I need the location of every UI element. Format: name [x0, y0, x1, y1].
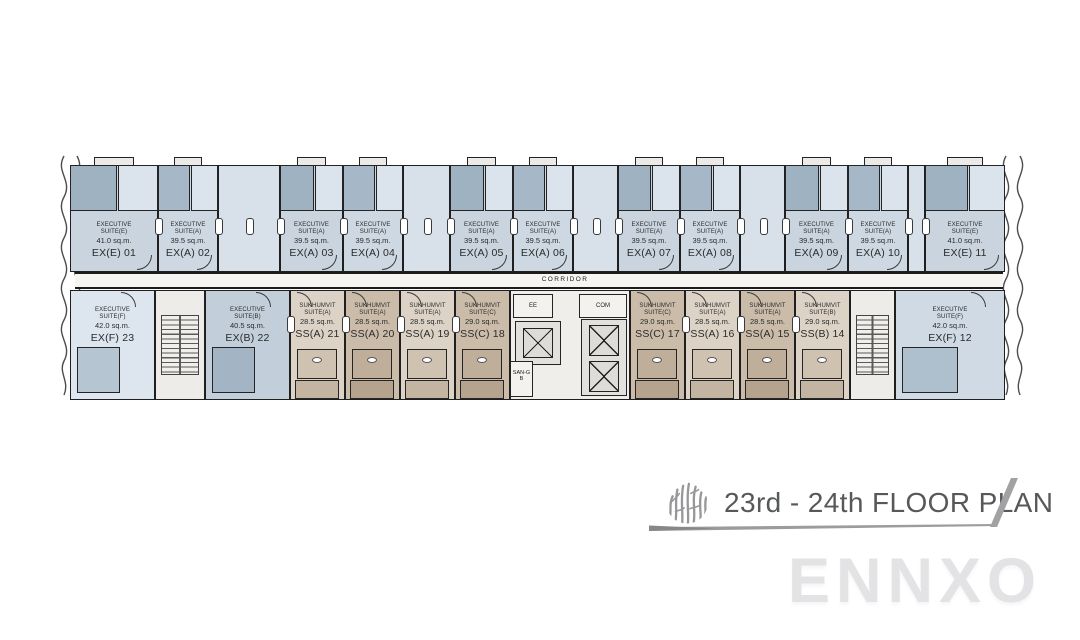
- bath-block: [118, 165, 158, 211]
- unit-label-area: 39.5 sq.m.: [619, 237, 679, 246]
- corridor: CORRIDOR: [75, 272, 1003, 289]
- unit-label-code: EX(B) 22: [206, 332, 289, 344]
- door-slot: [593, 218, 601, 235]
- unit-label-t1: EXECUTIVE: [281, 222, 342, 229]
- unit-label: EXECUTIVESUITE(A)39.5 sq.m.EX(A) 07: [619, 222, 679, 259]
- unit-label-t2: SUITE(A): [514, 229, 572, 236]
- balcony: [405, 380, 449, 399]
- unit-label-area: 39.5 sq.m.: [344, 237, 402, 246]
- unit-label: EXECUTIVESUITE(A)39.5 sq.m.EX(A) 09: [786, 222, 847, 259]
- unit-label-t2: SUITE(C): [456, 310, 509, 317]
- roof-ledge: [297, 157, 326, 166]
- bath-block: [315, 165, 343, 211]
- toilet-icon: [477, 357, 487, 363]
- door-arc: [692, 292, 707, 307]
- roof-ledge: [947, 157, 984, 166]
- elevator-shaft-right: [581, 319, 627, 396]
- unit-ssa-21: SUKHUMVITSUITE(A)28.5 sq.m.SS(A) 21: [290, 290, 345, 400]
- unit-exa-02: EXECUTIVESUITE(A)39.5 sq.m.EX(A) 02: [158, 165, 218, 272]
- door-slot: [400, 218, 408, 235]
- bath-block: [77, 347, 120, 393]
- door-arc: [492, 255, 507, 270]
- bath-block: [652, 165, 680, 211]
- door-arc: [747, 292, 762, 307]
- door-arc: [637, 292, 652, 307]
- unit-label: EXECUTIVESUITE(A)39.5 sq.m.EX(A) 02: [159, 222, 217, 259]
- unit-label-t1: EXECUTIVE: [896, 307, 1004, 314]
- bedroom-block: [680, 165, 712, 211]
- unit-exa-08: EXECUTIVESUITE(A)39.5 sq.m.EX(A) 08: [680, 165, 740, 272]
- unit-label-t2: SUITE(E): [71, 229, 157, 236]
- unit-label-code: SS(A) 19: [401, 328, 454, 340]
- door-arc: [121, 292, 136, 307]
- unit-label-area: 39.5 sq.m.: [514, 237, 572, 246]
- roof-ledge: [864, 157, 892, 166]
- unit-label-t1: EXECUTIVE: [159, 222, 217, 229]
- door-slot: [682, 316, 690, 333]
- unit-label-code: SS(B) 14: [796, 328, 849, 340]
- stairwell: [155, 290, 205, 400]
- unit-label-area: 39.5 sq.m.: [451, 237, 512, 246]
- balcony: [460, 380, 504, 399]
- bath-block: [747, 349, 786, 379]
- unit-label-code: SS(A) 15: [741, 328, 794, 340]
- bath-block: [713, 165, 740, 211]
- unit-label: EXECUTIVESUITE(A)39.5 sq.m.EX(A) 04: [344, 222, 402, 259]
- bath-block: [212, 347, 255, 393]
- door-slot: [737, 316, 745, 333]
- door-slot: [570, 218, 578, 235]
- unit-ssa-20: SUKHUMVITSUITE(A)28.5 sq.m.SS(A) 20: [345, 290, 400, 400]
- unit-label: EXECUTIVESUITE(F)42.0 sq.m.EX(F) 12: [896, 307, 1004, 344]
- unit-label: EXECUTIVESUITE(A)39.5 sq.m.EX(A) 05: [451, 222, 512, 259]
- door-slot: [782, 218, 790, 235]
- door-arc: [802, 292, 817, 307]
- unit-label-t2: SUITE(A): [451, 229, 512, 236]
- unit-label: SUKHUMVITSUITE(C)29.0 sq.m.SS(C) 17: [631, 303, 684, 340]
- toilet-icon: [312, 357, 322, 363]
- unit-label-t1: EXECUTIVE: [344, 222, 402, 229]
- elevator-icon: [589, 325, 619, 356]
- unit-label-area: 39.5 sq.m.: [681, 237, 739, 246]
- door-slot: [447, 218, 455, 235]
- toilet-icon: [422, 357, 432, 363]
- unit-exa-10: EXECUTIVESUITE(A)39.5 sq.m.EX(A) 10: [848, 165, 908, 272]
- bath-block: [191, 165, 218, 211]
- unit-label-code: SS(A) 16: [686, 328, 739, 340]
- unit-label-code: SS(A) 20: [346, 328, 399, 340]
- bath-block: [352, 349, 391, 379]
- door-slot: [287, 316, 295, 333]
- bath-block: [297, 349, 336, 379]
- unit-ssa-15: SUKHUMVITSUITE(A)28.5 sq.m.SS(A) 15: [740, 290, 795, 400]
- unit-exf-23: EXECUTIVESUITE(F)42.0 sq.m.EX(F) 23: [70, 290, 155, 400]
- toilet-icon: [707, 357, 717, 363]
- bedroom-block: [450, 165, 484, 211]
- toilet-icon: [817, 357, 827, 363]
- room-com: COM: [579, 294, 627, 318]
- unit-label-t1: EXECUTIVE: [514, 222, 572, 229]
- door-slot: [905, 218, 913, 235]
- unit-label-area: 29.0 sq.m.: [456, 318, 509, 327]
- unit-label-t2: SUITE(A): [741, 310, 794, 317]
- door-slot: [677, 218, 685, 235]
- unit-label: SUKHUMVITSUITE(A)28.5 sq.m.SS(A) 20: [346, 303, 399, 340]
- roof-ledge: [696, 157, 724, 166]
- door-arc: [197, 255, 212, 270]
- unit-label-area: 28.5 sq.m.: [741, 318, 794, 327]
- bath-block: [902, 347, 958, 393]
- bath-block: [969, 165, 1005, 211]
- bedroom-block: [925, 165, 968, 211]
- unit-label-t2: SUITE(B): [796, 310, 849, 317]
- room-san-gb-label: SAN-GB: [512, 370, 531, 382]
- unit-label-t1: EXECUTIVE: [619, 222, 679, 229]
- unit-label-t2: SUITE(A): [619, 229, 679, 236]
- unit-exa-05: EXECUTIVESUITE(A)39.5 sq.m.EX(A) 05: [450, 165, 513, 272]
- bedroom-block: [343, 165, 375, 211]
- unit-exa-06: EXECUTIVESUITE(A)39.5 sq.m.EX(A) 06: [513, 165, 573, 272]
- unit-exf-12: EXECUTIVESUITE(F)42.0 sq.m.EX(F) 12: [895, 290, 1005, 400]
- unit-label-t2: SUITE(E): [926, 229, 1004, 236]
- unit-label-area: 39.5 sq.m.: [281, 237, 342, 246]
- unit-label: EXECUTIVESUITE(E)41.0 sq.m.EX(E) 11: [926, 222, 1004, 259]
- unit-label-t2: SUITE(F): [896, 314, 1004, 321]
- unit-label-area: 40.5 sq.m.: [206, 322, 289, 331]
- door-slot: [792, 316, 800, 333]
- door-slot: [246, 218, 254, 235]
- door-arc: [462, 292, 477, 307]
- unit-exe-11: EXECUTIVESUITE(E)41.0 sq.m.EX(E) 11: [925, 165, 1005, 272]
- unit-ssb-14: SUKHUMVITSUITE(B)29.0 sq.m.SS(B) 14: [795, 290, 850, 400]
- door-slot: [845, 218, 853, 235]
- door-slot: [922, 218, 930, 235]
- balcony: [745, 380, 789, 399]
- bedroom-block: [848, 165, 880, 211]
- unit-label-t1: EXECUTIVE: [71, 222, 157, 229]
- unit-label-area: 28.5 sq.m.: [686, 318, 739, 327]
- unit-label-t1: EXECUTIVE: [681, 222, 739, 229]
- unit-label-code: EX(F) 23: [71, 332, 154, 344]
- unit-ssc-17: SUKHUMVITSUITE(C)29.0 sq.m.SS(C) 17: [630, 290, 685, 400]
- unit-label-t2: SUITE(A): [344, 229, 402, 236]
- door-arc: [297, 292, 312, 307]
- roof-ledge: [359, 157, 387, 166]
- elevator-core: EECOMSAN-GB: [510, 290, 630, 400]
- unit-ssa-16: SUKHUMVITSUITE(A)28.5 sq.m.SS(A) 16: [685, 290, 740, 400]
- bedroom-block: [70, 165, 117, 211]
- unit-label-area: 42.0 sq.m.: [71, 322, 154, 331]
- floor-plan: CORRIDOR EXECUTIVESUITE(E)41.0 sq.m.EX(E…: [0, 0, 1080, 640]
- shaft: [403, 165, 450, 272]
- door-arc: [352, 292, 367, 307]
- door-arc: [971, 292, 986, 307]
- balcony: [635, 380, 679, 399]
- balcony: [800, 380, 844, 399]
- door-arc: [659, 255, 674, 270]
- door-slot: [424, 218, 432, 235]
- unit-label-t1: EXECUTIVE: [71, 307, 154, 314]
- unit-label: EXECUTIVESUITE(A)39.5 sq.m.EX(A) 03: [281, 222, 342, 259]
- unit-label-code: SS(C) 17: [631, 328, 684, 340]
- door-arc: [322, 255, 337, 270]
- unit-ssc-18: SUKHUMVITSUITE(C)29.0 sq.m.SS(C) 18: [455, 290, 510, 400]
- unit-label: EXECUTIVESUITE(B)40.5 sq.m.EX(B) 22: [206, 307, 289, 344]
- room-ee-label: EE: [514, 303, 552, 310]
- bath-block: [692, 349, 731, 379]
- unit-label-area: 39.5 sq.m.: [849, 237, 907, 246]
- door-arc: [407, 292, 422, 307]
- stair-flight: [856, 315, 889, 375]
- door-slot: [760, 218, 768, 235]
- door-slot: [215, 218, 223, 235]
- swoosh-underline: [645, 470, 1040, 542]
- door-slot: [342, 316, 350, 333]
- unit-label-area: 42.0 sq.m.: [896, 322, 1004, 331]
- door-arc: [256, 292, 271, 307]
- door-slot: [277, 218, 285, 235]
- unit-label-area: 41.0 sq.m.: [71, 237, 157, 246]
- door-arc: [887, 255, 902, 270]
- unit-label-area: 28.5 sq.m.: [346, 318, 399, 327]
- door-arc: [382, 255, 397, 270]
- elevator-icon: [523, 328, 553, 358]
- door-arc: [552, 255, 567, 270]
- unit-label-t2: SUITE(A): [686, 310, 739, 317]
- unit-label-t2: SUITE(C): [631, 310, 684, 317]
- bedroom-block: [618, 165, 651, 211]
- door-arc: [137, 255, 152, 270]
- bath-block: [485, 165, 513, 211]
- unit-label-t2: SUITE(F): [71, 314, 154, 321]
- bath-block: [820, 165, 848, 211]
- balcony: [690, 380, 734, 399]
- bath-block: [462, 349, 501, 379]
- room-com-label: COM: [580, 303, 626, 310]
- unit-exe-01: EXECUTIVESUITE(E)41.0 sq.m.EX(E) 01: [70, 165, 158, 272]
- unit-label: SUKHUMVITSUITE(A)28.5 sq.m.SS(A) 15: [741, 303, 794, 340]
- unit-label: SUKHUMVITSUITE(C)29.0 sq.m.SS(C) 18: [456, 303, 509, 340]
- balcony: [350, 380, 394, 399]
- unit-label-area: 41.0 sq.m.: [926, 237, 1004, 246]
- room-ee: EE: [513, 294, 553, 318]
- unit-label-t2: SUITE(A): [159, 229, 217, 236]
- shaft: [573, 165, 618, 272]
- toilet-icon: [652, 357, 662, 363]
- bedroom-block: [785, 165, 819, 211]
- shaft: [218, 165, 280, 272]
- unit-label-t2: SUITE(A): [291, 310, 344, 317]
- door-slot: [510, 218, 518, 235]
- bath-block: [407, 349, 446, 379]
- roof-ledge: [94, 157, 134, 166]
- unit-label: EXECUTIVESUITE(A)39.5 sq.m.EX(A) 06: [514, 222, 572, 259]
- unit-exb-22: EXECUTIVESUITE(B)40.5 sq.m.EX(B) 22: [205, 290, 290, 400]
- unit-label-t2: SUITE(A): [401, 310, 454, 317]
- unit-label: SUKHUMVITSUITE(A)28.5 sq.m.SS(A) 21: [291, 303, 344, 340]
- roof-ledge: [635, 157, 664, 166]
- stair-flight: [161, 315, 199, 375]
- door-arc: [719, 255, 734, 270]
- unit-exa-04: EXECUTIVESUITE(A)39.5 sq.m.EX(A) 04: [343, 165, 403, 272]
- elevator-shaft-left: [515, 321, 561, 365]
- unit-label-area: 29.0 sq.m.: [796, 318, 849, 327]
- elevator-icon: [589, 361, 619, 392]
- bath-block: [802, 349, 841, 379]
- balcony: [295, 380, 339, 399]
- unit-label-t2: SUITE(A): [281, 229, 342, 236]
- unit-label-t2: SUITE(B): [206, 314, 289, 321]
- bath-block: [637, 349, 676, 379]
- door-slot: [452, 316, 460, 333]
- unit-label-area: 29.0 sq.m.: [631, 318, 684, 327]
- door-slot: [397, 316, 405, 333]
- unit-label-t1: EXECUTIVE: [206, 307, 289, 314]
- door-slot: [340, 218, 348, 235]
- shaft: [740, 165, 785, 272]
- door-slot: [737, 218, 745, 235]
- bedroom-block: [513, 165, 545, 211]
- door-slot: [155, 218, 163, 235]
- bedroom-block: [280, 165, 314, 211]
- unit-label-t2: SUITE(A): [681, 229, 739, 236]
- unit-label-t2: SUITE(A): [849, 229, 907, 236]
- bath-block: [376, 165, 403, 211]
- unit-label: EXECUTIVESUITE(E)41.0 sq.m.EX(E) 01: [71, 222, 157, 259]
- unit-label-t1: EXECUTIVE: [786, 222, 847, 229]
- unit-label-area: 39.5 sq.m.: [159, 237, 217, 246]
- stairwell: [850, 290, 895, 400]
- door-arc: [827, 255, 842, 270]
- unit-label: EXECUTIVESUITE(A)39.5 sq.m.EX(A) 08: [681, 222, 739, 259]
- bath-block: [546, 165, 573, 211]
- unit-label-code: SS(C) 18: [456, 328, 509, 340]
- unit-label-code: SS(A) 21: [291, 328, 344, 340]
- unit-label-code: EX(F) 12: [896, 332, 1004, 344]
- door-slot: [615, 218, 623, 235]
- unit-label-area: 28.5 sq.m.: [401, 318, 454, 327]
- bath-block: [881, 165, 908, 211]
- unit-exa-09: EXECUTIVESUITE(A)39.5 sq.m.EX(A) 09: [785, 165, 848, 272]
- roof-ledge: [174, 157, 202, 166]
- unit-exa-07: EXECUTIVESUITE(A)39.5 sq.m.EX(A) 07: [618, 165, 680, 272]
- unit-exa-03: EXECUTIVESUITE(A)39.5 sq.m.EX(A) 03: [280, 165, 343, 272]
- unit-label-t2: SUITE(A): [346, 310, 399, 317]
- roof-ledge: [802, 157, 831, 166]
- door-arc: [984, 255, 999, 270]
- unit-label-area: 28.5 sq.m.: [291, 318, 344, 327]
- unit-label-t1: EXECUTIVE: [451, 222, 512, 229]
- unit-label-t2: SUITE(A): [786, 229, 847, 236]
- ennxo-watermark: ENNXO: [788, 545, 1042, 617]
- room-san-gb: SAN-GB: [510, 361, 533, 397]
- unit-ssa-19: SUKHUMVITSUITE(A)28.5 sq.m.SS(A) 19: [400, 290, 455, 400]
- bedroom-block: [158, 165, 190, 211]
- unit-label: SUKHUMVITSUITE(B)29.0 sq.m.SS(B) 14: [796, 303, 849, 340]
- toilet-icon: [367, 357, 377, 363]
- roof-ledge: [467, 157, 496, 166]
- unit-label: SUKHUMVITSUITE(A)28.5 sq.m.SS(A) 16: [686, 303, 739, 340]
- unit-label: EXECUTIVESUITE(A)39.5 sq.m.EX(A) 10: [849, 222, 907, 259]
- corridor-label: CORRIDOR: [525, 276, 605, 283]
- unit-label: EXECUTIVESUITE(F)42.0 sq.m.EX(F) 23: [71, 307, 154, 344]
- unit-label-area: 39.5 sq.m.: [786, 237, 847, 246]
- roof-ledge: [529, 157, 557, 166]
- unit-label-t1: EXECUTIVE: [926, 222, 1004, 229]
- unit-label: SUKHUMVITSUITE(A)28.5 sq.m.SS(A) 19: [401, 303, 454, 340]
- unit-label-t1: EXECUTIVE: [849, 222, 907, 229]
- toilet-icon: [762, 357, 772, 363]
